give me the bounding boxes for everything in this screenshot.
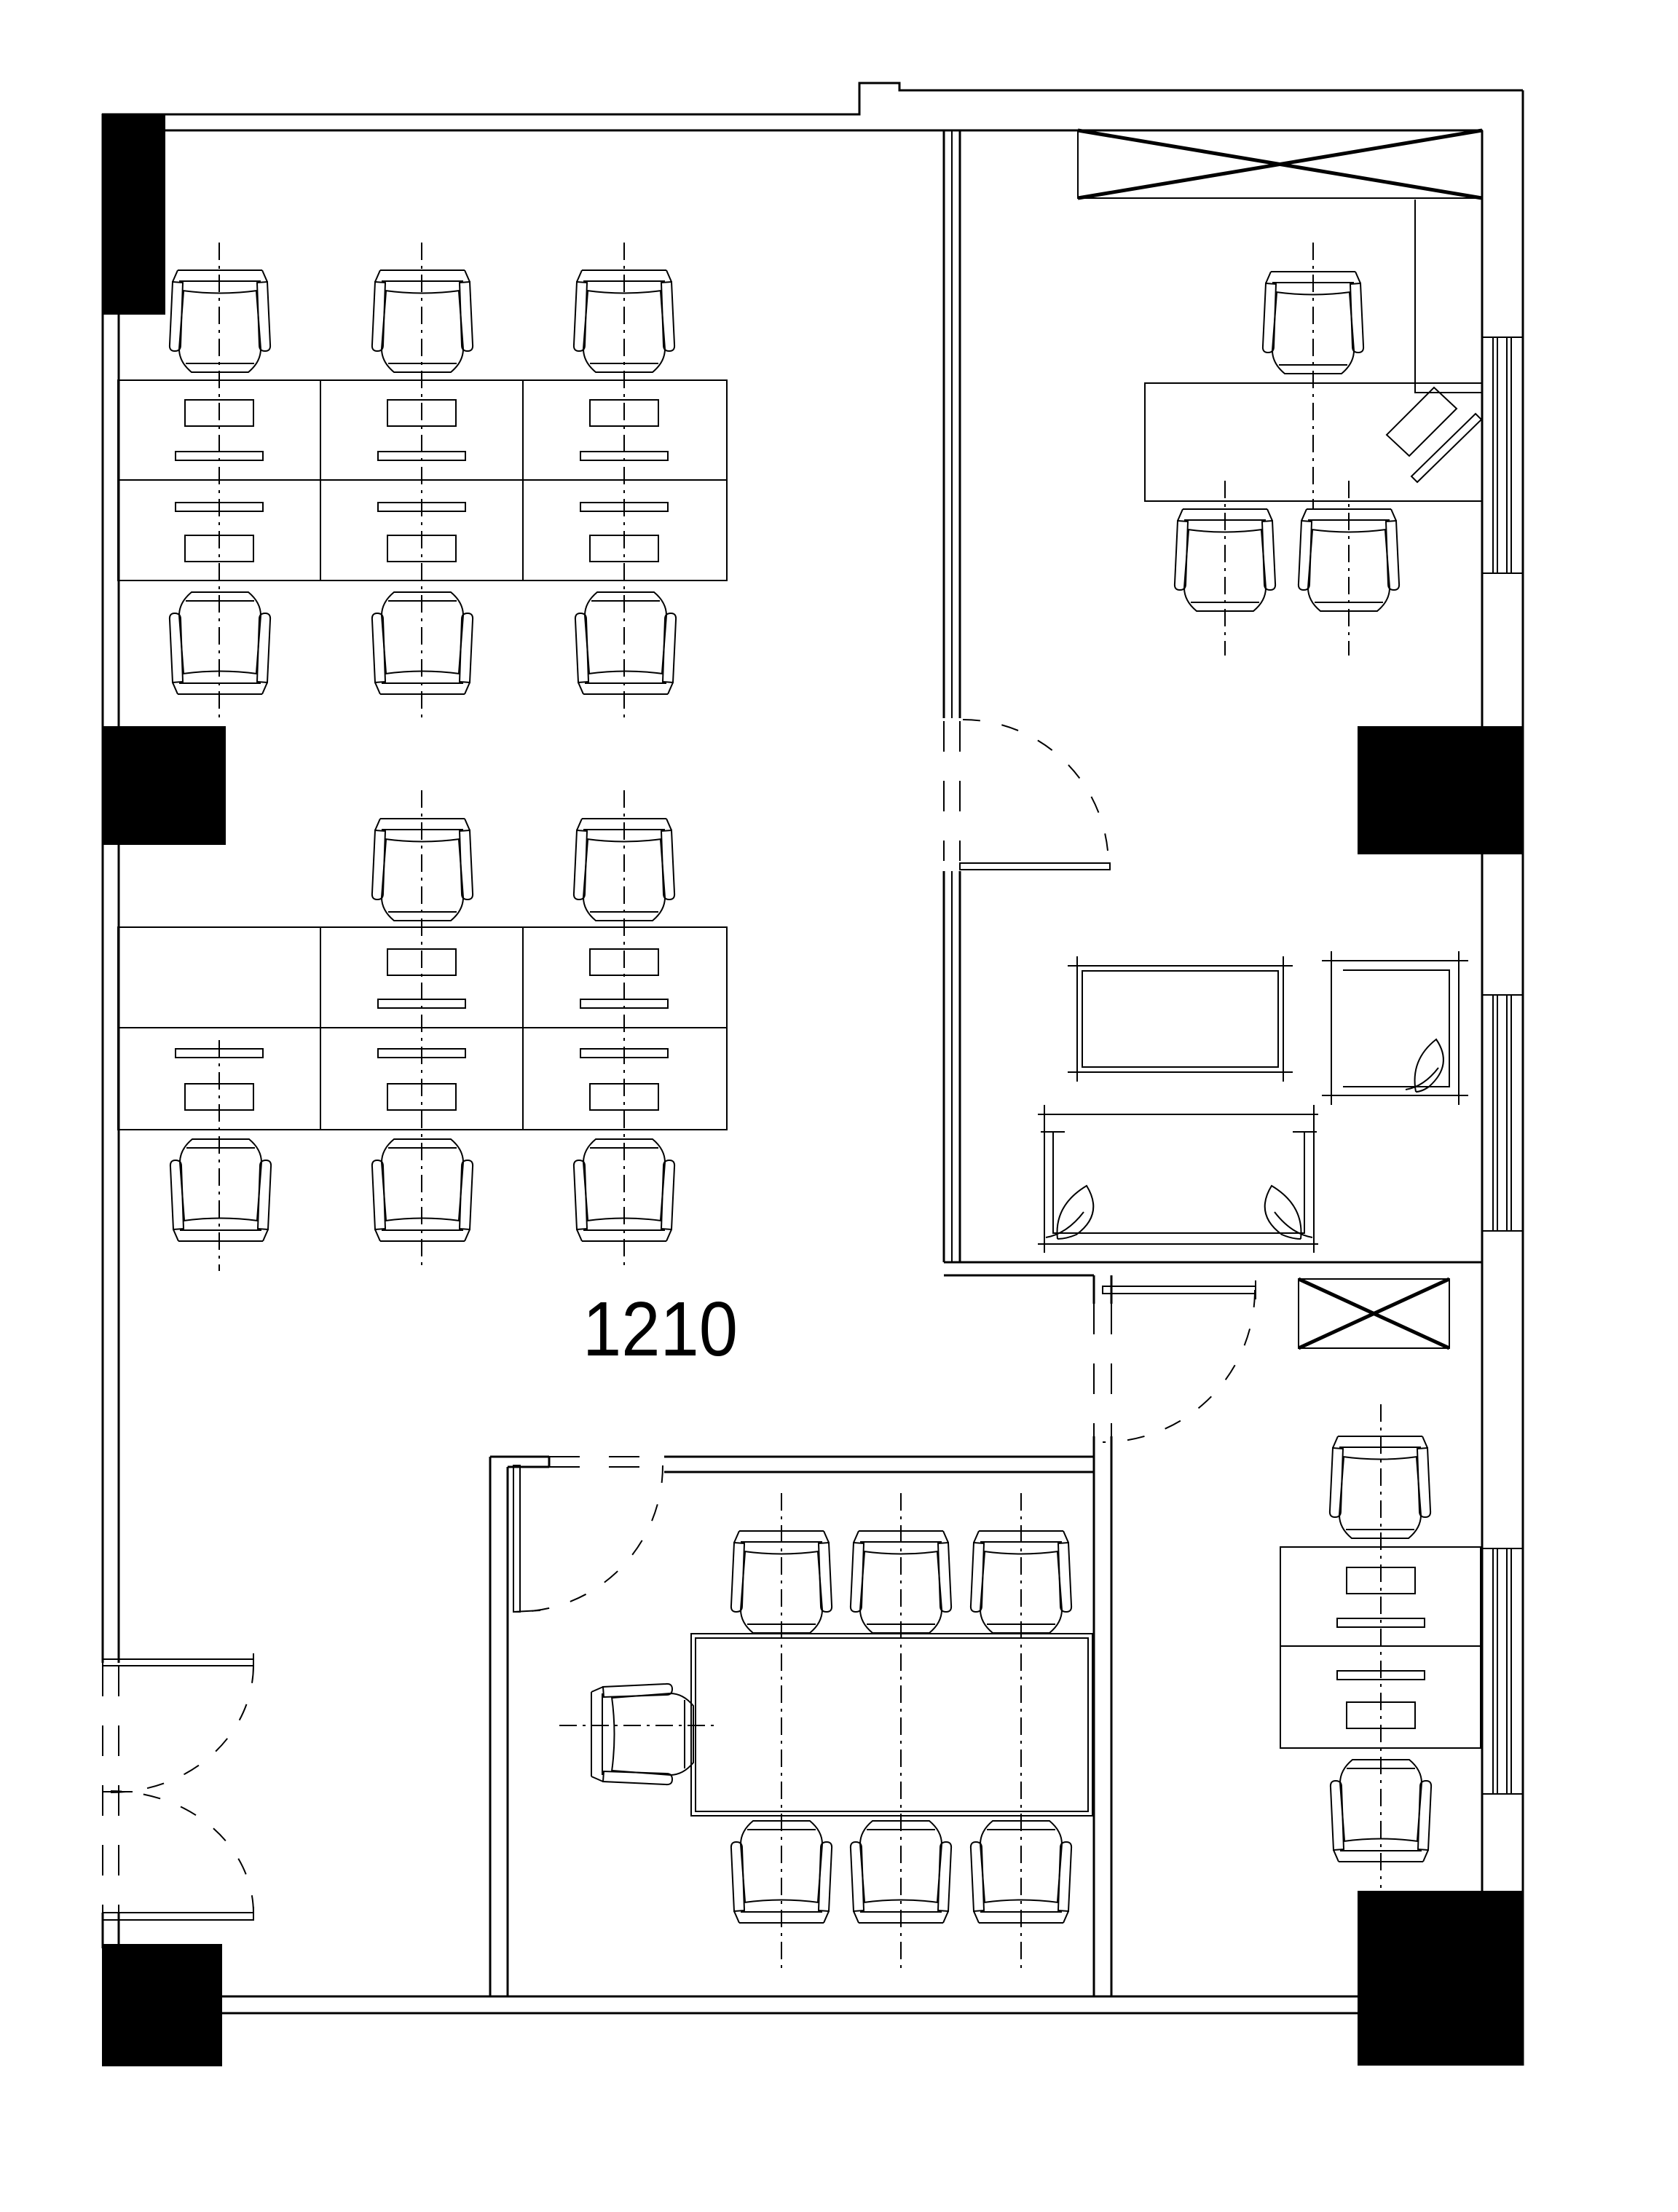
svg-text:1210: 1210	[583, 1286, 738, 1372]
